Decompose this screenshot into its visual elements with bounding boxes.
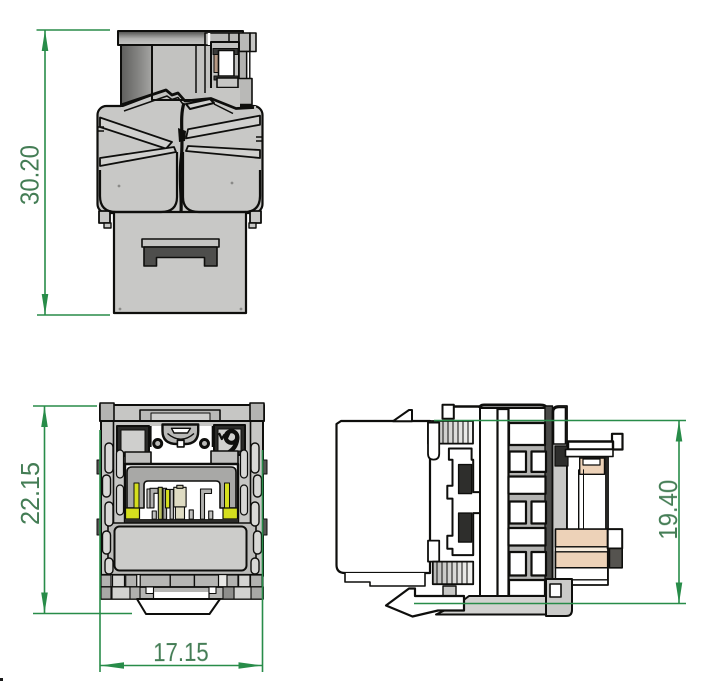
svg-text:19.40: 19.40 bbox=[653, 480, 683, 540]
svg-text:17.15: 17.15 bbox=[153, 637, 209, 667]
svg-text:22.15: 22.15 bbox=[15, 462, 45, 525]
svg-text:30.20: 30.20 bbox=[15, 145, 45, 205]
